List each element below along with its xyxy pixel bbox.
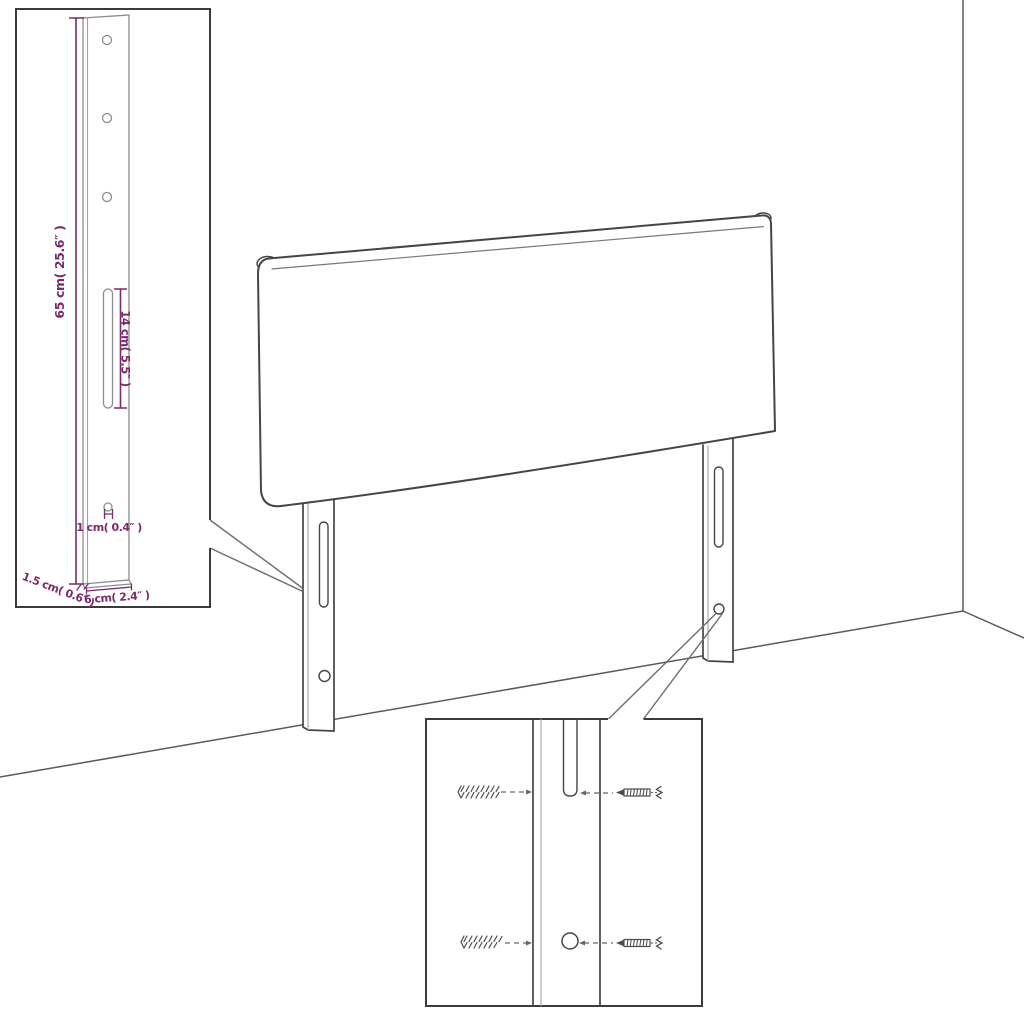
- callout-leaders: [210, 520, 723, 719]
- diagram-canvas: 65 cm( 25.6″ ) 14 cm( 5.5″ ) 1 cm( 0.4″ …: [0, 0, 1024, 1024]
- hardware-callout-leader-left: [609, 613, 717, 719]
- dimension-hole-label: 1 cm( 0.4″ ): [76, 521, 142, 534]
- panel-outline: [258, 215, 775, 506]
- dimension-slot-label: 14 cm( 5.5″ ): [119, 310, 133, 387]
- dimension-height-label: 65 cm( 25.6″ ): [52, 225, 67, 318]
- right-leg: [703, 435, 733, 662]
- dimension-diagram: 65 cm( 25.6″ ) 14 cm( 5.5″ ) 1 cm( 0.4″ …: [0, 0, 1024, 1024]
- headboard-panel: [256, 212, 775, 506]
- hardware-callout: [426, 719, 702, 1006]
- leg-dimension-callout: 65 cm( 25.6″ ) 14 cm( 5.5″ ) 1 cm( 0.4″ …: [16, 9, 210, 610]
- hardware-callout-leader-right: [644, 614, 723, 720]
- left-leg: [303, 490, 334, 731]
